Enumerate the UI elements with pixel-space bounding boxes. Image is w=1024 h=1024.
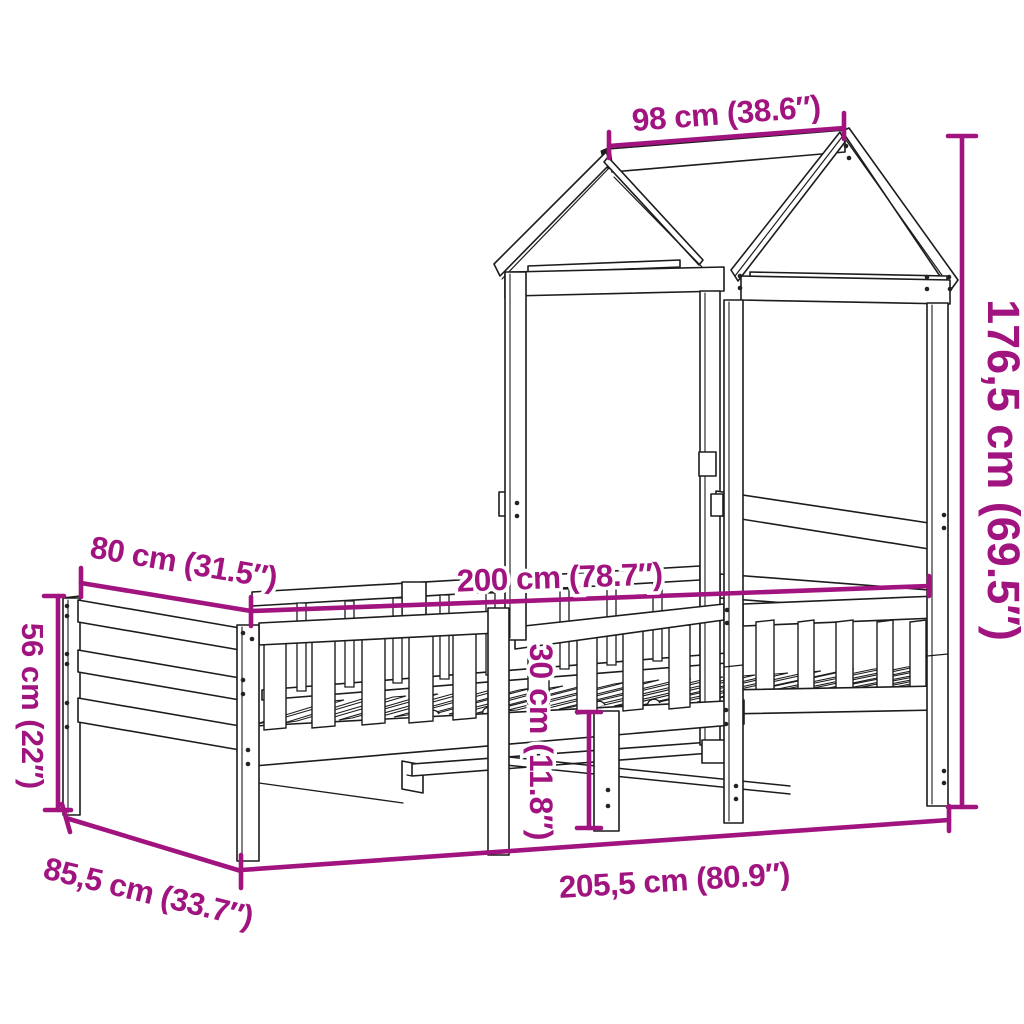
svg-text:176,5 cm (69.5″): 176,5 cm (69.5″) xyxy=(978,299,1024,641)
svg-text:30 cm (11.8″): 30 cm (11.8″) xyxy=(523,644,559,841)
svg-text:200 cm (78.7″): 200 cm (78.7″) xyxy=(456,555,663,598)
svg-text:56 cm (22″): 56 cm (22″) xyxy=(15,623,50,790)
